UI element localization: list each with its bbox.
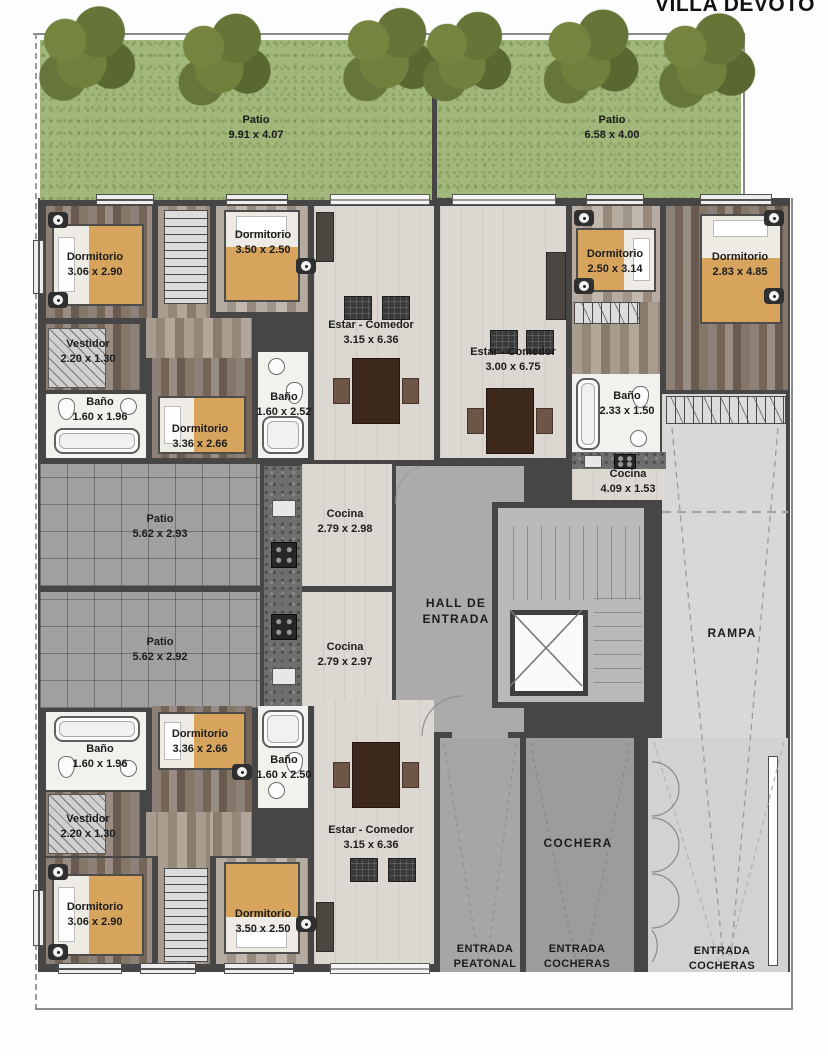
label-cocina-m1: Cocina2.79 x 2.98 <box>317 507 372 537</box>
stair-run-right <box>594 590 642 696</box>
property-line-left <box>35 33 37 1010</box>
dining-table-icon <box>352 742 400 808</box>
cochera-area <box>526 738 634 972</box>
chair-icon <box>402 762 419 788</box>
label-entrada-peatonal: ENTRADAPEATONAL <box>454 942 517 972</box>
label-entrada-cocheras-right: ENTRADACOCHERAS <box>689 944 755 974</box>
tree-icon <box>30 5 140 105</box>
label-estar-comedor-tl: Estar - Comedor3.15 x 6.36 <box>328 318 414 348</box>
window-icon <box>140 963 196 974</box>
label-patio-tr: Patio6.58 x 4.00 <box>584 113 639 143</box>
closet-hatch <box>666 396 786 424</box>
sink-icon <box>268 358 285 375</box>
closet-hatch <box>574 302 640 324</box>
label-bano-bl1: Baño1.60 x 1.96 <box>72 742 127 772</box>
bathtub-icon <box>54 716 140 742</box>
label-bano-tl1: Baño1.60 x 1.96 <box>72 395 127 425</box>
bathtub-icon <box>262 416 304 454</box>
sink-icon <box>268 782 285 799</box>
stairwell <box>492 502 650 708</box>
label-entrada-cocheras-left: ENTRADACOCHERAS <box>544 942 610 972</box>
dining-table-icon <box>352 358 400 424</box>
window-icon <box>96 194 154 205</box>
patio-door-icon <box>452 194 556 205</box>
sofa-icon <box>316 902 334 952</box>
wall-light-icon <box>232 764 252 780</box>
tree-icon <box>415 10 515 106</box>
closet-hatch <box>164 210 208 304</box>
window-icon <box>33 240 44 294</box>
stair-run-upper <box>500 526 642 600</box>
kitchen-sink-icon <box>272 500 296 517</box>
label-cochera: COCHERA <box>543 835 612 851</box>
wall-light-icon <box>764 210 784 226</box>
label-cocina-m2: Cocina2.79 x 2.97 <box>317 640 372 670</box>
chair-icon <box>333 762 350 788</box>
window-icon <box>58 963 122 974</box>
kitchen-sink-icon <box>272 668 296 685</box>
hallway-tl <box>146 318 252 358</box>
property-line-right-lower <box>791 198 793 1010</box>
chair-icon <box>467 408 484 434</box>
stove-icon <box>271 542 297 568</box>
label-dormitorio-tr1: Dormitorio2.50 x 3.14 <box>587 247 643 277</box>
wall-light-icon <box>48 292 68 308</box>
label-dormitorio-bl1: Dormitorio3.36 x 2.66 <box>172 727 228 757</box>
label-dormitorio-tl1: Dormitorio3.06 x 2.90 <box>67 250 123 280</box>
window-icon <box>226 194 288 205</box>
chair-icon <box>536 408 553 434</box>
wall-light-icon <box>296 258 316 274</box>
label-dormitorio-tl2: Dormitorio3.50 x 2.50 <box>235 228 291 258</box>
label-vestidor-t: Vestidor2.20 x 1.30 <box>60 337 115 367</box>
label-dormitorio-bl3: Dormitorio3.50 x 2.50 <box>235 907 291 937</box>
label-bano-bl2: Baño1.60 x 2.50 <box>256 753 311 783</box>
sofa-icon <box>546 252 566 320</box>
patio-door-icon <box>330 194 430 205</box>
property-line-bottom <box>35 1008 793 1010</box>
window-icon <box>224 963 294 974</box>
stove-icon <box>271 614 297 640</box>
sink-icon <box>630 430 647 447</box>
window-icon <box>700 194 772 205</box>
sofa-icon <box>316 212 334 262</box>
wall-light-icon <box>48 944 68 960</box>
label-patio-tl: Patio9.91 x 4.07 <box>228 113 283 143</box>
wall-light-icon <box>574 210 594 226</box>
label-cocina-tr: Cocina4.09 x 1.53 <box>600 467 655 497</box>
bathtub-icon <box>54 428 140 454</box>
label-estar-comedor-tr: Estar - Comedor3.00 x 6.75 <box>470 345 556 375</box>
window-icon <box>586 194 644 205</box>
label-bano-tl2: Baño1.60 x 2.52 <box>256 390 311 420</box>
dining-table-icon <box>486 388 534 454</box>
garage-gate <box>768 756 778 966</box>
page-title: VILLA DEVOTO <box>655 0 815 17</box>
label-dormitorio-tr2: Dormitorio2.83 x 4.85 <box>712 250 768 280</box>
wall-light-icon <box>48 864 68 880</box>
bathtub-icon <box>262 710 304 748</box>
label-patio-m2: Patio5.62 x 2.92 <box>132 635 187 665</box>
label-dormitorio-bl2: Dormitorio3.06 x 2.90 <box>67 900 123 930</box>
elevator-shaft <box>510 610 588 696</box>
armchair-icon <box>388 858 416 882</box>
entrada-cocheras-area <box>648 738 788 972</box>
label-bano-tr: Baño2.33 x 1.50 <box>599 389 654 419</box>
kitchen-sink-icon <box>584 455 602 468</box>
floor-plan: VILLA DEVOTO <box>0 0 828 1056</box>
armchair-icon <box>382 296 410 320</box>
closet-hatch <box>164 868 208 962</box>
label-estar-comedor-bl: Estar - Comedor3.15 x 6.36 <box>328 823 414 853</box>
entrada-peatonal-corridor <box>440 738 520 972</box>
tree-icon <box>650 12 760 112</box>
wall-light-icon <box>48 212 68 228</box>
wall-light-icon <box>764 288 784 304</box>
window-icon <box>33 890 44 946</box>
wall-light-icon <box>296 916 316 932</box>
bathtub-icon <box>576 378 600 450</box>
label-rampa: RAMPA <box>707 625 756 641</box>
patio-door-icon <box>330 963 430 974</box>
label-dormitorio-tl3: Dormitorio3.36 x 2.66 <box>172 422 228 452</box>
label-hall-de-entrada: HALL DEENTRADA <box>422 595 489 627</box>
chair-icon <box>402 378 419 404</box>
label-patio-m1: Patio5.62 x 2.93 <box>132 512 187 542</box>
wall-light-icon <box>574 278 594 294</box>
armchair-icon <box>350 858 378 882</box>
tree-icon <box>535 8 643 108</box>
tree-icon <box>170 12 275 110</box>
armchair-icon <box>344 296 372 320</box>
label-vestidor-b: Vestidor2.20 x 1.30 <box>60 812 115 842</box>
chair-icon <box>333 378 350 404</box>
